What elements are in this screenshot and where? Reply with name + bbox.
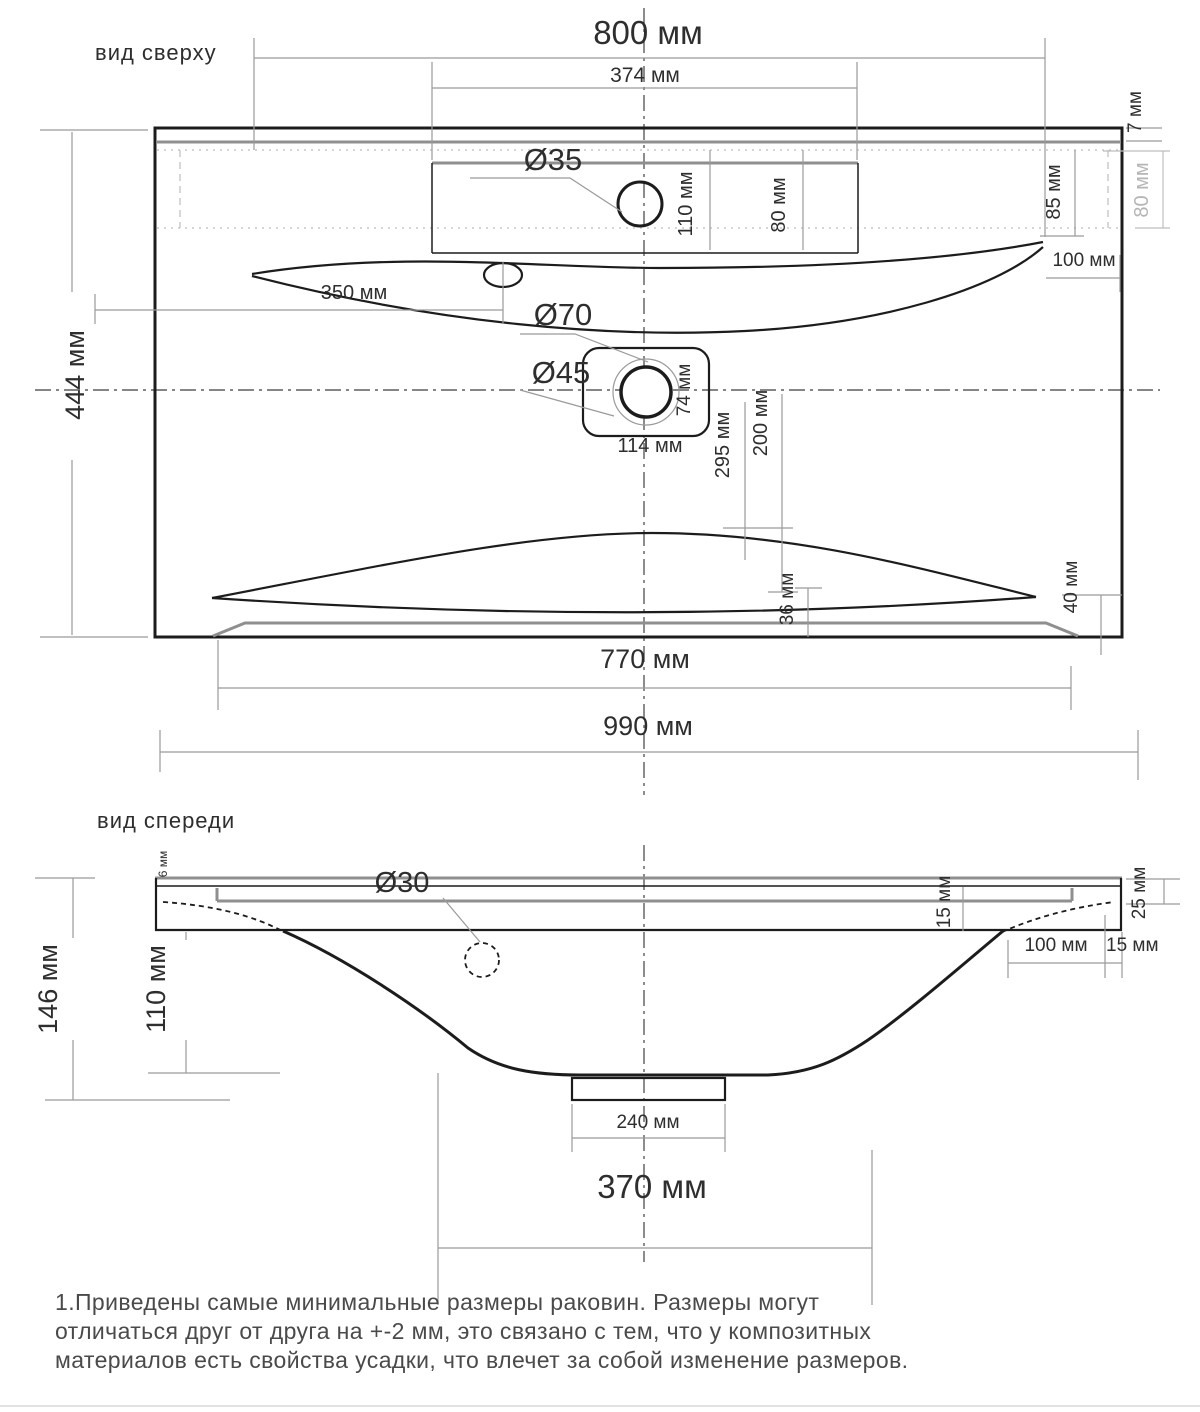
dim-d70-label: Ø70 [534, 297, 593, 332]
bottom-border [0, 1405, 1200, 1407]
dim-800-label: 800 мм [593, 14, 703, 51]
sink-dimension-drawing: 800 мм 374 мм 444 мм Ø35 110 мм 80 м [0, 0, 1200, 1412]
dim-240: 240 мм [572, 1104, 725, 1152]
dim-80-label: 80 мм [768, 177, 790, 232]
dim-6-label: 6 мм [156, 851, 170, 878]
dim-100-top-label: 100 мм [1052, 250, 1115, 271]
dim-d35: Ø35 [470, 142, 622, 212]
technical-drawing-page: 800 мм 374 мм 444 мм Ø35 110 мм 80 м [0, 0, 1200, 1412]
dim-990: 990 мм [160, 711, 1138, 780]
dim-25: 25 мм [1126, 867, 1180, 920]
dim-444-label: 444 мм [60, 330, 90, 420]
footnote: 1.Приведены самые минимальные размеры ра… [55, 1288, 1165, 1375]
dim-350-label: 350 мм [321, 282, 387, 304]
drain-trap [572, 1078, 725, 1100]
dim-d45: Ø45 [520, 355, 614, 416]
dim-110-front: 110 мм [141, 932, 280, 1073]
dim-36-label: 36 мм [777, 573, 798, 626]
dim-370: 370 мм [438, 1073, 872, 1305]
dim-15-recess-label: 15 мм [934, 876, 955, 929]
faucet-hole [618, 182, 662, 226]
dim-80-grey: 80 мм [1103, 151, 1170, 228]
dim-74-label: 74 мм [674, 364, 695, 417]
dim-146-label: 146 мм [33, 944, 63, 1034]
dim-370-label: 370 мм [597, 1168, 707, 1205]
front-view: Ø30 6 мм 146 мм 110 мм 15 мм [33, 808, 1180, 1305]
dim-100-15: 100 мм 15 мм [1008, 915, 1159, 978]
top-view-title: вид сверху [95, 40, 217, 65]
dim-110-label: 110 мм [675, 172, 697, 237]
dim-146: 146 мм [33, 878, 230, 1100]
hidden-corner-arcs [163, 902, 1114, 932]
dim-d35-label: Ø35 [524, 142, 583, 177]
dim-15-recess: 15 мм [934, 876, 963, 931]
dim-85: 85 мм [1040, 150, 1084, 236]
dim-36: 36 мм [777, 573, 822, 637]
dim-114-label: 114 мм [618, 435, 683, 457]
dim-374-label: 374 мм [610, 64, 680, 87]
top-view: 800 мм 374 мм 444 мм Ø35 110 мм 80 м [35, 8, 1170, 795]
footnote-line-3: материалов есть свойства усадки, что вле… [55, 1346, 1165, 1375]
dim-d70: Ø70 [520, 297, 648, 362]
dim-25-label: 25 мм [1129, 867, 1150, 920]
dim-110-80: 110 мм 80 мм [675, 150, 803, 250]
dim-110-front-label: 110 мм [141, 945, 171, 1033]
bowl-profile [283, 931, 1003, 1075]
dim-100-front-label: 100 мм [1024, 935, 1087, 956]
dim-200-label: 200 мм [750, 390, 772, 456]
centerlines-top [35, 8, 1160, 795]
front-view-title: вид спереди [97, 808, 235, 833]
dim-d45-label: Ø45 [532, 355, 591, 390]
footnote-line-2: отличаться друг от друга на +-2 мм, это … [55, 1317, 1165, 1346]
dim-85-label: 85 мм [1043, 164, 1065, 219]
dim-240-label: 240 мм [616, 1112, 679, 1133]
dim-40: 40 мм [1061, 561, 1122, 655]
dim-770-label: 770 мм [600, 644, 690, 674]
dim-7-label: 7 мм [1125, 91, 1146, 133]
dim-40-label: 40 мм [1061, 561, 1082, 614]
drain-hole [621, 367, 671, 417]
dim-800: 800 мм [254, 14, 1045, 237]
dim-7: 7 мм [1125, 91, 1162, 141]
dim-80-grey-label: 80 мм [1131, 162, 1153, 217]
footnote-line-1: 1.Приведены самые минимальные размеры ра… [55, 1288, 1165, 1317]
dim-295-label: 295 мм [712, 412, 734, 478]
slab-outline [155, 878, 1122, 931]
hidden-drain-circle [465, 943, 499, 977]
dim-d30-label: Ø30 [375, 867, 430, 899]
dim-295-200: 295 мм 200 мм [712, 390, 798, 592]
dim-100-top: 100 мм [1046, 250, 1120, 292]
dim-15-front-label: 15 мм [1106, 935, 1159, 956]
faucet-deck [432, 163, 858, 253]
dim-444: 444 мм [40, 130, 148, 637]
dim-990-label: 990 мм [603, 711, 693, 741]
